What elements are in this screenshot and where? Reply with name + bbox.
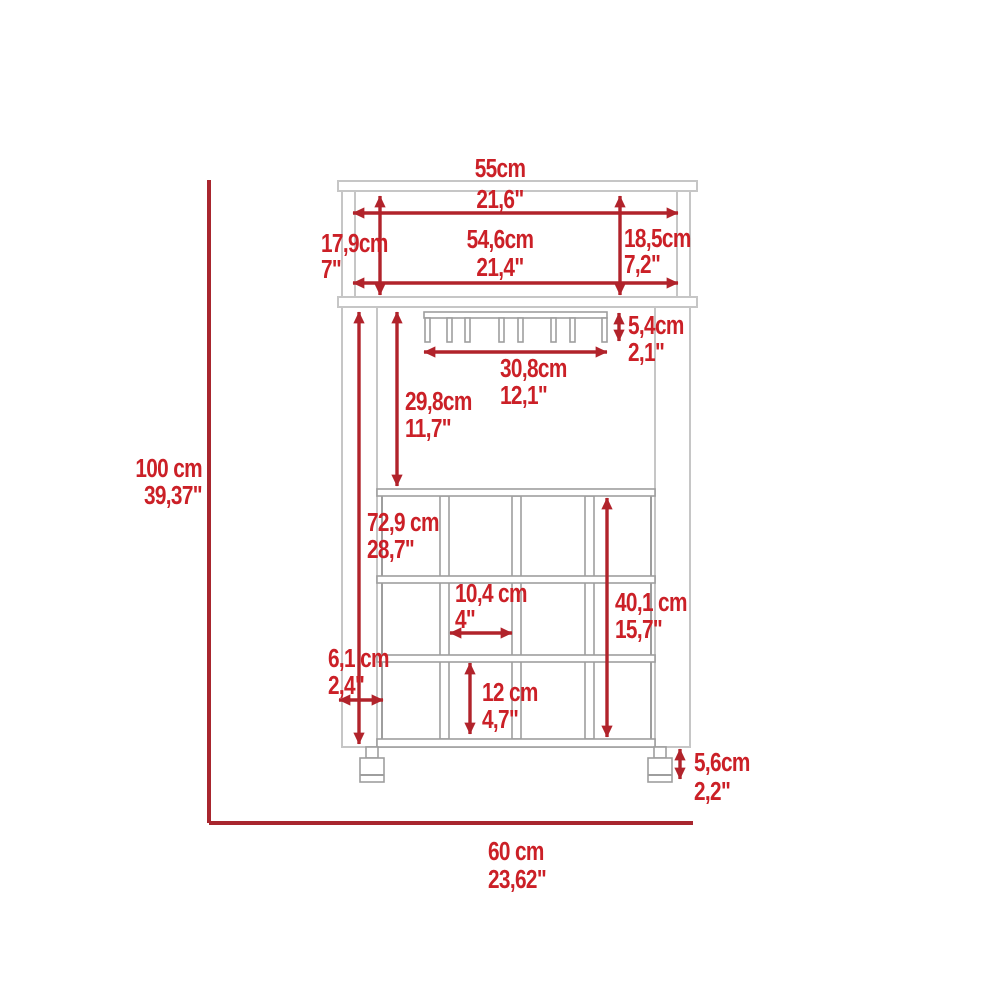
label-hutch-right-height-in: 7,2"	[624, 250, 660, 279]
grid-bottom-shelf	[377, 739, 655, 747]
grid-shelf	[377, 489, 655, 496]
label-wine-rack-height-in: 15,7"	[615, 615, 662, 644]
casters	[360, 747, 672, 782]
label-hutch-left-height-in: 7"	[321, 255, 341, 284]
grid-shelf	[377, 655, 655, 662]
label-body-interior-height-in: 28,7"	[367, 535, 414, 564]
stemware-rail	[424, 312, 607, 318]
label-upper-cavity-height-cm: 29,8cm	[405, 387, 472, 416]
bar-cart-technical-drawing: 55cm 21,6" 54,6cm 21,4" 17,9cm 7" 18,5cm…	[0, 0, 1000, 1000]
label-cubby-height-cm: 12 cm	[482, 678, 538, 707]
stemware-slat	[518, 318, 523, 342]
stemware-slat	[425, 318, 430, 342]
label-caster-height-in: 2,2"	[694, 777, 730, 806]
label-hutch-left-height-cm: 17,9cm	[321, 229, 388, 258]
label-top-inner-width-in: 21,4"	[476, 253, 523, 282]
stemware-slat	[465, 318, 470, 342]
label-side-panel-width-cm: 6,1 cm	[328, 644, 389, 673]
label-stemware-height-cm: 5,4cm	[628, 311, 684, 340]
caster-wheel-right	[648, 758, 672, 782]
body-right-wall	[655, 307, 690, 747]
label-top-width-in: 21,6"	[476, 185, 523, 214]
label-cubby-width-cm: 10,4 cm	[455, 579, 527, 608]
label-top-width-cm: 55cm	[475, 154, 526, 183]
label-side-panel-width-in: 2,4"	[328, 671, 364, 700]
caster-stem-right	[654, 747, 666, 758]
caster-wheel-left	[360, 758, 384, 782]
label-overall-height-in: 39,37"	[144, 481, 202, 510]
grid-divider	[585, 496, 594, 739]
stemware-slat	[447, 318, 452, 342]
stemware-slat	[551, 318, 556, 342]
label-wine-rack-height-cm: 40,1 cm	[615, 588, 687, 617]
label-overall-width-in: 23,62"	[488, 865, 546, 894]
grid-divider	[440, 496, 449, 739]
caster-stem-left	[366, 747, 378, 758]
label-stemware-width-in: 12,1"	[500, 381, 547, 410]
label-overall-width-cm: 60 cm	[488, 837, 544, 866]
label-top-inner-width-cm: 54,6cm	[467, 225, 534, 254]
label-cubby-height-in: 4,7"	[482, 705, 518, 734]
label-cubby-width-in: 4"	[455, 605, 475, 634]
dimension-graphics	[209, 180, 693, 823]
label-hutch-right-height-cm: 18,5cm	[624, 224, 691, 253]
stemware-slat	[570, 318, 575, 342]
label-stemware-height-in: 2,1"	[628, 338, 664, 367]
label-upper-cavity-height-in: 11,7"	[405, 414, 451, 443]
stemware-slat	[602, 318, 607, 342]
label-overall-height-cm: 100 cm	[135, 454, 202, 483]
hutch-shelf	[338, 297, 697, 307]
label-stemware-width-cm: 30,8cm	[500, 354, 567, 383]
stemware-slat	[499, 318, 504, 342]
stemware-rack	[424, 312, 607, 342]
label-body-interior-height-cm: 72,9 cm	[367, 508, 439, 537]
label-caster-height-cm: 5,6cm	[694, 748, 750, 777]
drawing-canvas: 55cm 21,6" 54,6cm 21,4" 17,9cm 7" 18,5cm…	[0, 0, 1000, 1000]
